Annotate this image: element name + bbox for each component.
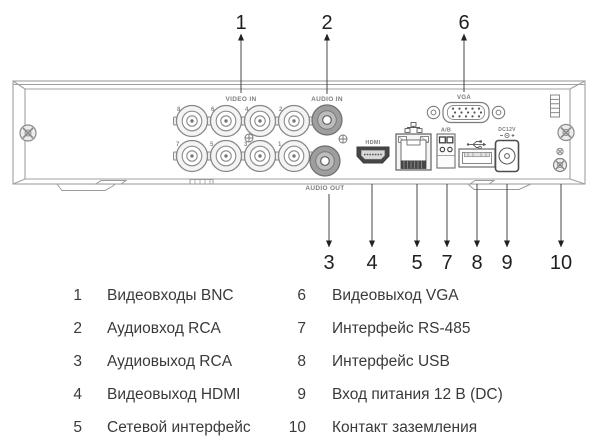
legend: 1 Видеовходы BNC 6 Видеовыход VGA 2 Ауди… [0,0,600,441]
legend-number: 3 [52,353,82,371]
legend-label: Контакт заземления [332,419,477,437]
legend-number: 1 [52,287,82,305]
legend-label: Аудиовыход RCA [107,353,232,371]
legend-row: 5 Сетевой интерфейс 10 Контакт заземлени… [0,419,600,441]
legend-number: 9 [276,386,306,404]
legend-label: Аудиовход RCA [107,320,221,338]
legend-label: Интерфейс USB [332,353,450,371]
legend-row: 1 Видеовходы BNC 6 Видеовыход VGA [0,287,600,309]
legend-label: Видеовыход VGA [332,287,459,305]
legend-number: 8 [276,353,306,371]
legend-number: 2 [52,320,82,338]
legend-row: 4 Видеовыход HDMI 9 Вход питания 12 В (D… [0,386,600,408]
legend-number: 4 [52,386,82,404]
legend-number: 10 [276,419,306,437]
legend-label: Интерфейс RS-485 [332,320,471,338]
legend-number: 5 [52,419,82,437]
legend-label: Видеовыход HDMI [107,386,240,404]
legend-label: Сетевой интерфейс [107,419,251,437]
page: VIDEO IN 8 6 4 2 7 5 3 1 AUDIO IN AUDIO … [0,0,600,441]
legend-row: 2 Аудиовход RCA 7 Интерфейс RS-485 [0,320,600,342]
legend-row: 3 Аудиовыход RCA 8 Интерфейс USB [0,353,600,375]
legend-label: Видеовходы BNC [107,287,234,305]
legend-number: 7 [276,320,306,338]
legend-label: Вход питания 12 В (DC) [332,386,503,404]
legend-number: 6 [276,287,306,305]
